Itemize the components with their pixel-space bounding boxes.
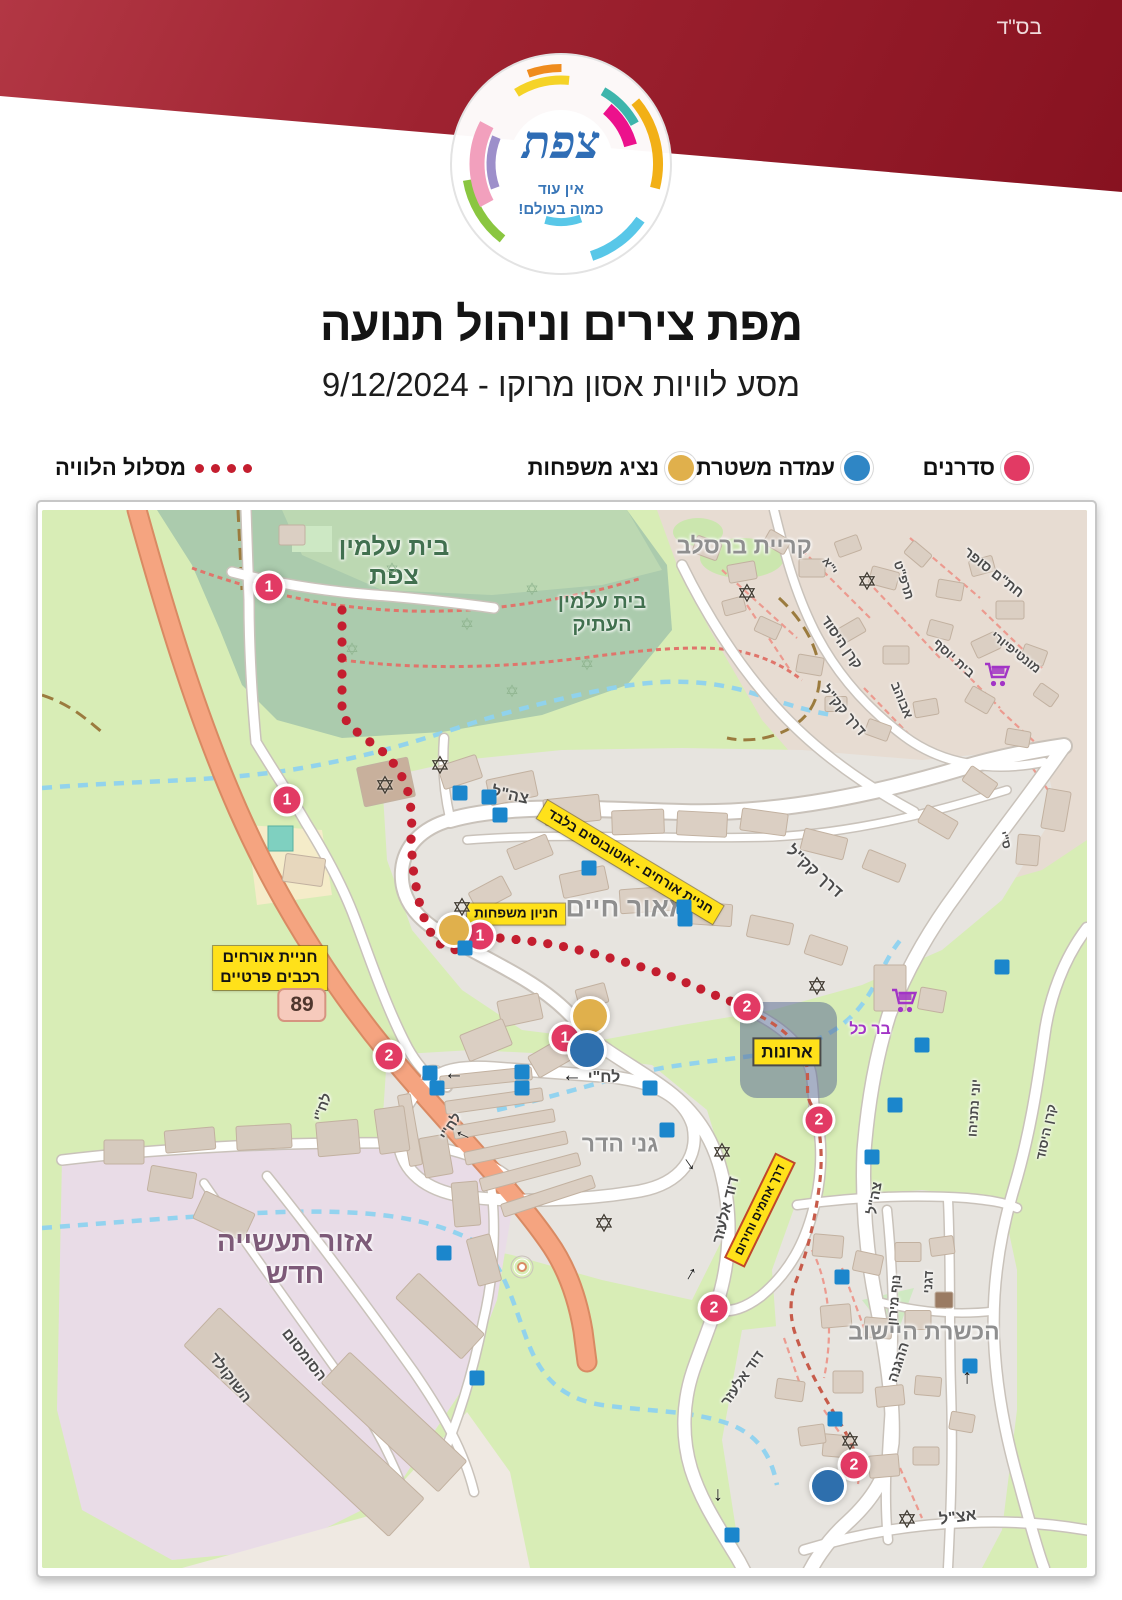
- cemetery-star-icon: ✡: [385, 560, 399, 580]
- street-label: דגני: [920, 1270, 936, 1293]
- supermarket-cart-icon: [982, 661, 1012, 693]
- synagogue-star-icon: ✡: [430, 751, 451, 781]
- police-square-marker: [470, 1371, 485, 1386]
- street-label: קרן היסוד: [818, 612, 866, 671]
- street-label: יוני נתניהו: [964, 1079, 983, 1138]
- police-square-marker: [660, 1123, 675, 1138]
- yellow-sign: חניית אורחים רכבים פרטיים: [213, 946, 327, 990]
- direction-arrow-icon: →: [954, 1368, 977, 1388]
- street-label: דרך קק"ל: [782, 842, 846, 902]
- cemetery-star-icon: ✡: [460, 615, 474, 635]
- city-map: בית עלמין צפתבית עלמין העתיקקריית ברסלבמ…: [42, 510, 1087, 1568]
- street-label: בית יוסף: [930, 636, 978, 681]
- police-square-marker: [493, 808, 508, 823]
- page-title: מפת צירים וניהול תנועה: [0, 296, 1122, 351]
- area-label: הכשרת היישוב: [848, 1319, 999, 1346]
- legend-item-family-rep: נציג משפחות: [528, 455, 694, 481]
- street-label: לח"י: [310, 1091, 335, 1123]
- police-square-marker: [582, 861, 597, 876]
- map-card: בית עלמין צפתבית עלמין העתיקקריית ברסלבמ…: [36, 500, 1097, 1578]
- synagogue-star-icon: ✡: [857, 567, 878, 597]
- street-label: הסומסום: [278, 1325, 329, 1384]
- area-label: בר כל: [849, 1021, 891, 1039]
- street-label: דרך קק"ל: [818, 682, 869, 739]
- police-square-marker: [430, 1081, 445, 1096]
- sadran-marker: 2: [734, 994, 761, 1021]
- logo-city-name: צפת: [520, 115, 599, 169]
- police-square-marker: [678, 912, 693, 927]
- police-square-marker: [995, 960, 1010, 975]
- police-square-marker: [828, 1412, 843, 1427]
- synagogue-star-icon: ✡: [897, 1505, 918, 1535]
- police-post-marker: [570, 1033, 604, 1067]
- police-square-marker: [865, 1150, 880, 1165]
- synagogue-star-icon: ✡: [712, 1138, 733, 1168]
- supermarket-cart-icon: [889, 987, 919, 1019]
- street-label: קרן היסוד: [1033, 1103, 1059, 1161]
- sadran-marker: 1: [256, 574, 283, 601]
- direction-arrow-icon: →: [562, 1069, 582, 1092]
- yellow-sign: חניון משפחות: [467, 904, 565, 925]
- route-dots-icon: [195, 464, 252, 473]
- logo-tagline-2: כמוה בעולם!: [518, 201, 603, 218]
- police-square-marker: [515, 1081, 530, 1096]
- police-square-marker: [835, 1270, 850, 1285]
- yellow-sign: ארונות: [754, 1039, 819, 1064]
- police-square-marker: [458, 941, 473, 956]
- area-label: בית עלמין העתיק: [558, 591, 646, 637]
- legend-item-route: מסלול הלוויה: [55, 455, 252, 481]
- direction-arrow-icon: →: [709, 1485, 732, 1505]
- page: { "meta": { "bsd": "בס\"ד" }, "logo": { …: [0, 0, 1122, 1600]
- sadranim-circle-icon: [1004, 455, 1030, 481]
- street-label: אצ"ל: [938, 1506, 978, 1529]
- sadran-marker: 2: [806, 1107, 833, 1134]
- street-label: דוד אלעזר: [717, 1347, 766, 1408]
- cemetery-star-icon: ✡: [505, 682, 519, 702]
- legend-item-sadranim: סדרנים: [923, 455, 1030, 481]
- cemetery-star-icon: ✡: [525, 580, 539, 600]
- police-square-marker: [888, 1098, 903, 1113]
- police-square-marker: [515, 1065, 530, 1080]
- police-post-circle-icon: [844, 455, 870, 481]
- police-post-marker: [812, 1470, 844, 1502]
- route-89-shield: 89: [277, 988, 326, 1022]
- family-rep-circle-icon: [668, 455, 694, 481]
- synagogue-star-icon: ✡: [452, 893, 473, 923]
- direction-arrow-icon: →: [676, 1148, 706, 1178]
- legend-label: מסלול הלוויה: [55, 455, 186, 481]
- street-label: ס"י: [996, 829, 1015, 850]
- family-rep-marker: [573, 999, 607, 1033]
- police-square-marker: [643, 1081, 658, 1096]
- street-label: י"א: [819, 555, 841, 577]
- synagogue-star-icon: ✡: [807, 972, 828, 1002]
- legend-item-police-post: עמדה משטרתית: [674, 455, 870, 481]
- direction-arrow-icon: →: [674, 1259, 704, 1288]
- street-label: לח"י: [588, 1069, 620, 1087]
- sadran-marker: 2: [701, 1295, 728, 1322]
- legend-label: עמדה משטרתית: [674, 455, 835, 481]
- legend-label: סדרנים: [923, 455, 995, 481]
- area-label: אזור תעשייה חדש: [217, 1226, 373, 1290]
- bsd-text: בס"ד: [997, 16, 1042, 40]
- cemetery-star-icon: ✡: [345, 640, 359, 660]
- yellow-sign: דרך אחמים וחירום: [727, 1155, 794, 1265]
- sadran-marker: 1: [274, 787, 301, 814]
- street-label: חת"ם סופר: [961, 544, 1027, 601]
- synagogue-star-icon: ✡: [375, 771, 396, 801]
- city-logo: צפת אין עוד כמוה בעולם!: [447, 50, 675, 278]
- direction-arrow-icon: →: [444, 1067, 464, 1090]
- area-label: גני הדר: [582, 1131, 658, 1158]
- sadran-marker: 2: [376, 1043, 403, 1070]
- police-square-marker: [453, 786, 468, 801]
- street-label: אבוהב: [888, 679, 916, 720]
- police-square-marker: [482, 790, 497, 805]
- police-square-marker: [423, 1066, 438, 1081]
- area-label: קריית ברסלב: [676, 533, 811, 560]
- police-square-marker: [915, 1038, 930, 1053]
- synagogue-star-icon: ✡: [737, 579, 758, 609]
- street-label: השוקולד: [205, 1350, 254, 1406]
- street-label: צה"ל: [863, 1181, 884, 1216]
- page-subtitle: מסע לוויות אסון מרוקו - 9/12/2024: [0, 366, 1122, 404]
- logo-tagline-1: אין עוד: [538, 181, 584, 198]
- synagogue-star-icon: ✡: [840, 1427, 861, 1457]
- street-label: תרפ"ט: [891, 559, 918, 602]
- map-overlay: בית עלמין צפתבית עלמין העתיקקריית ברסלבמ…: [42, 510, 1087, 1568]
- police-square-marker: [437, 1246, 452, 1261]
- police-square-marker: [725, 1528, 740, 1543]
- synagogue-star-icon: ✡: [594, 1209, 615, 1239]
- legend-label: נציג משפחות: [528, 455, 659, 481]
- cemetery-star-icon: ✡: [580, 655, 594, 675]
- street-label: ההגנה: [884, 1340, 912, 1384]
